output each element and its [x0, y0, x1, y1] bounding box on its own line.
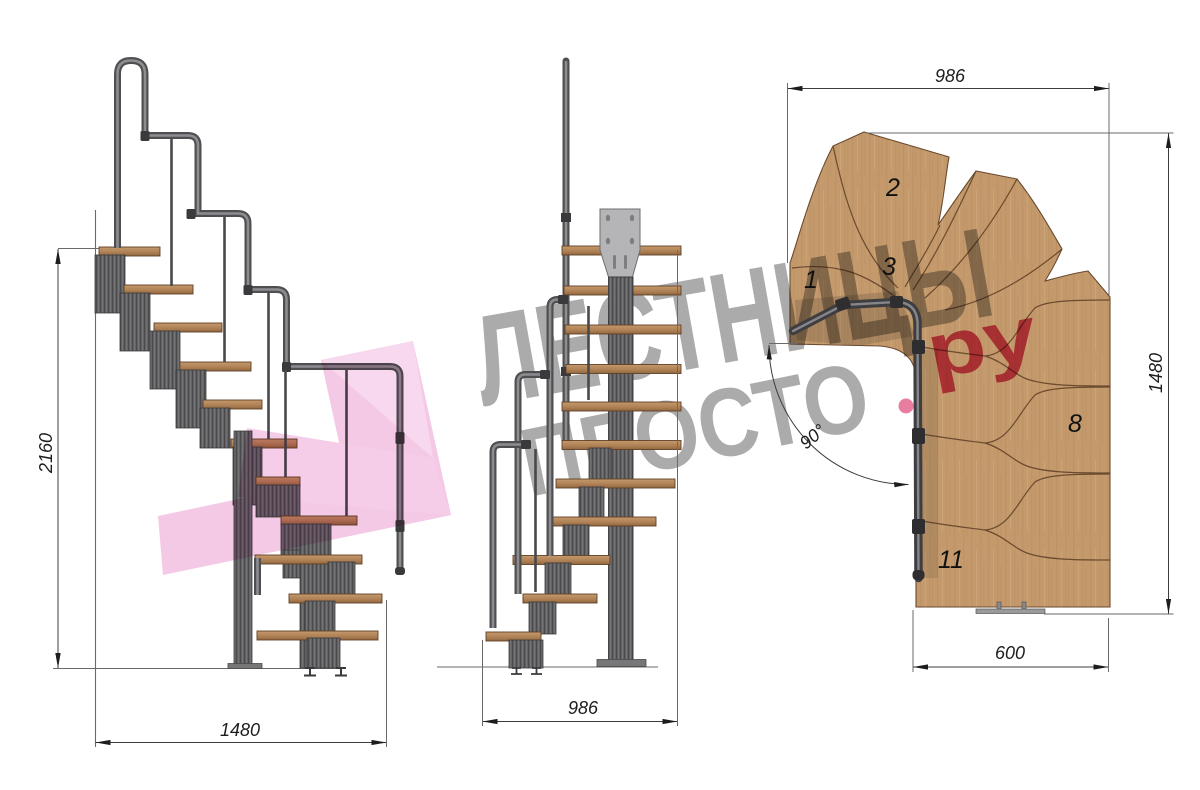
svg-text:2: 2 — [885, 174, 900, 202]
svg-text:1480: 1480 — [220, 720, 260, 740]
svg-text:1: 1 — [804, 266, 818, 294]
svg-text:8: 8 — [1068, 410, 1082, 438]
svg-text:986: 986 — [935, 66, 966, 86]
svg-text:3: 3 — [882, 253, 896, 281]
svg-text:600: 600 — [995, 643, 1025, 663]
svg-text:986: 986 — [568, 698, 599, 718]
svg-text:2160: 2160 — [36, 433, 56, 474]
svg-text:1480: 1480 — [1146, 353, 1166, 393]
svg-text:11: 11 — [938, 546, 964, 574]
